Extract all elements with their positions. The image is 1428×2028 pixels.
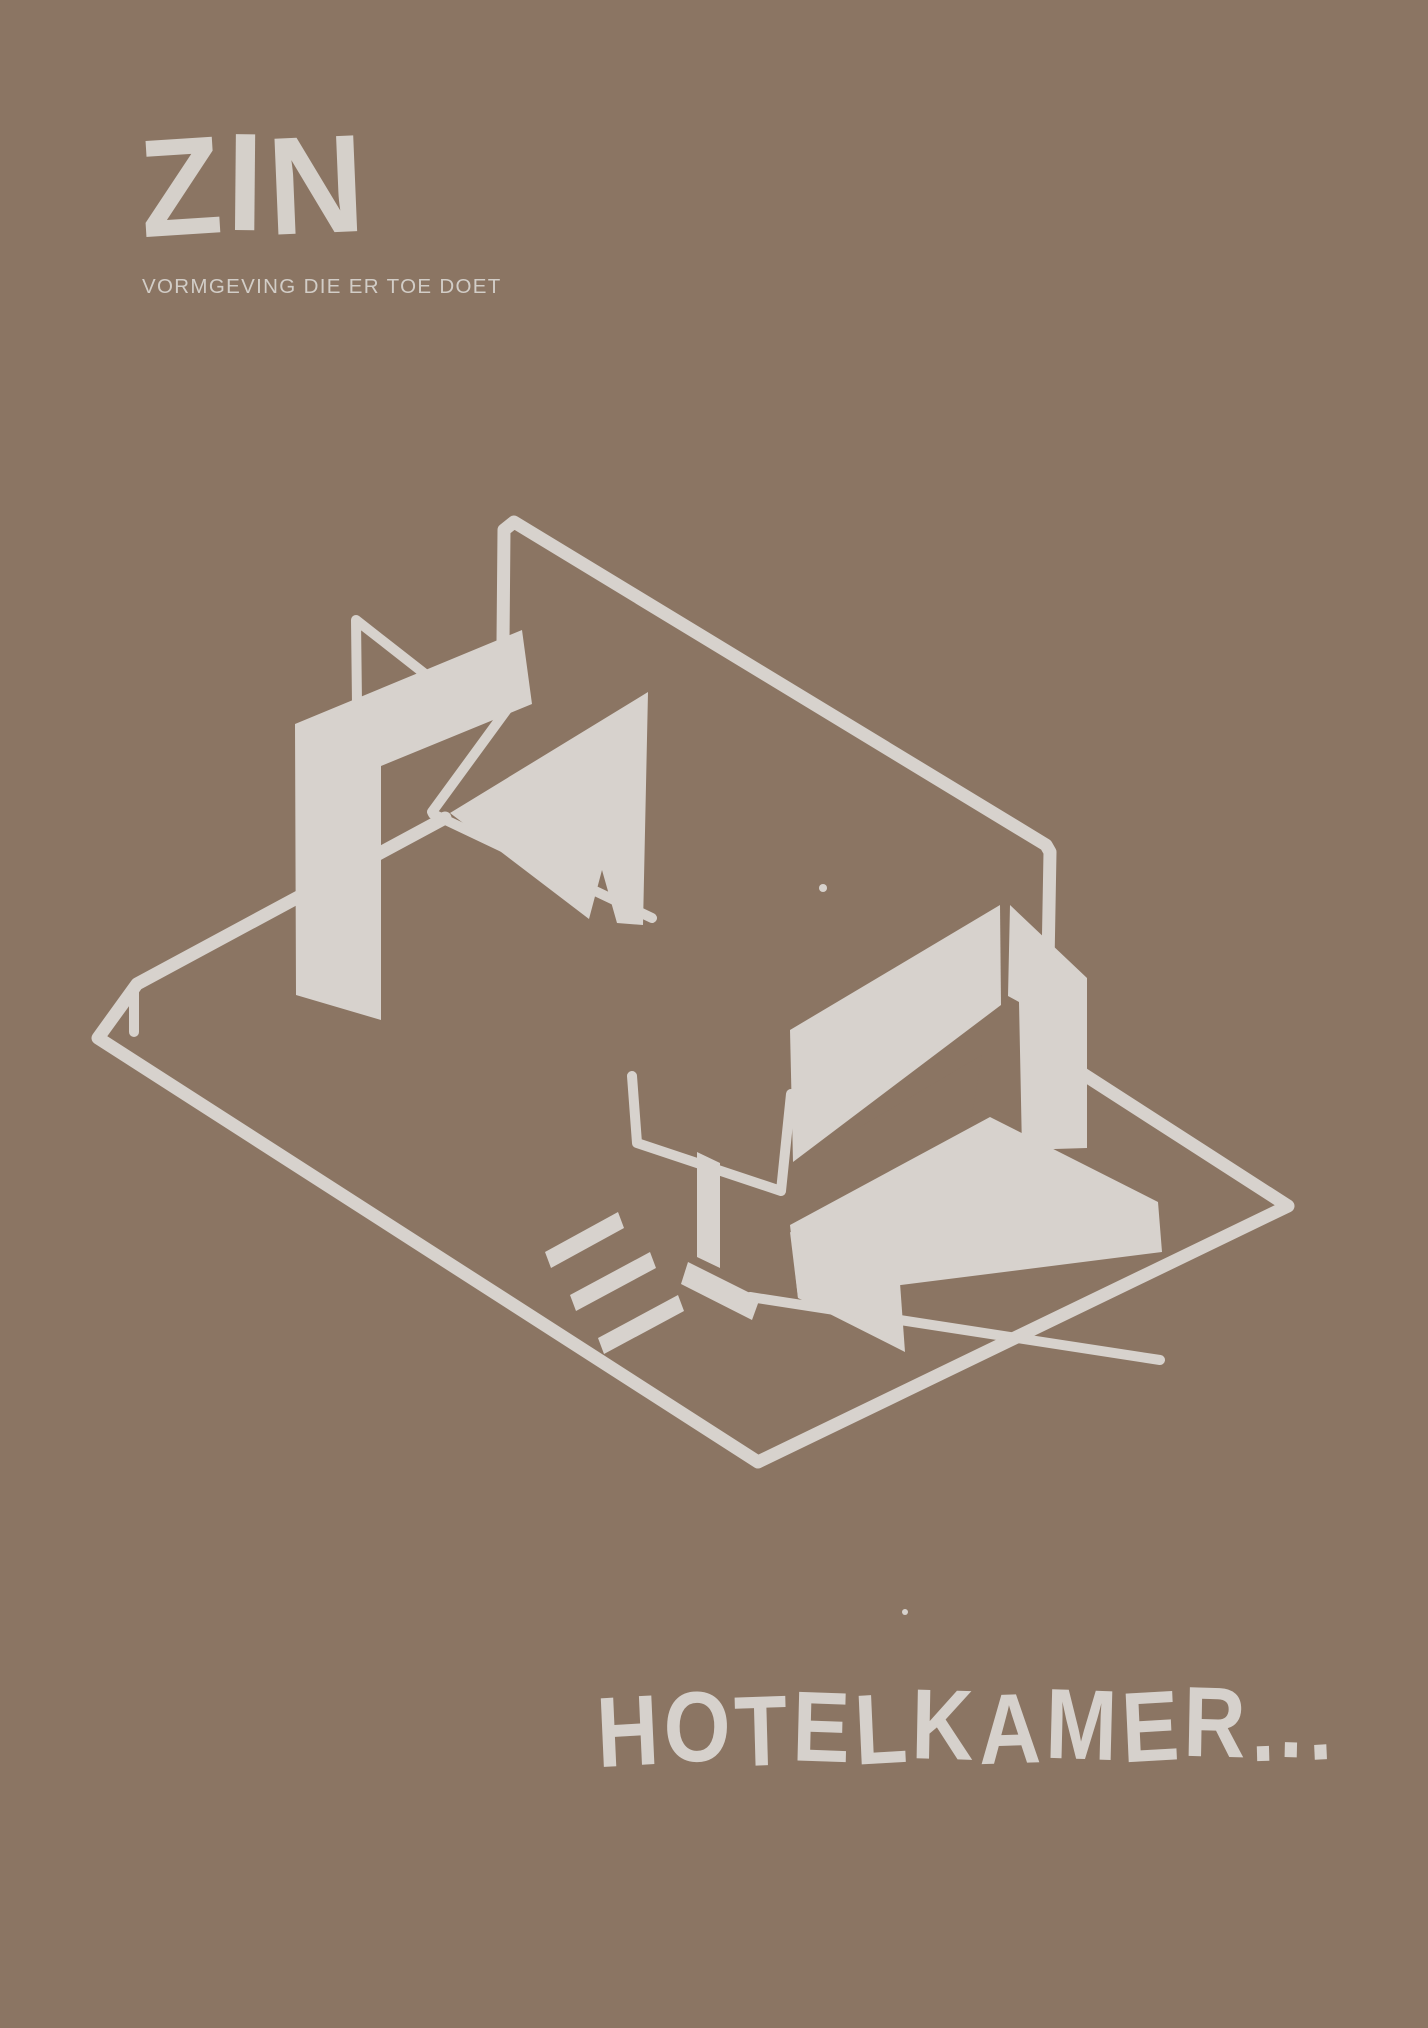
ink-speck-1 — [819, 884, 827, 892]
step-strip-2 — [681, 1262, 760, 1320]
floor-outline — [98, 818, 1288, 1462]
rug-dash-3 — [598, 1295, 684, 1354]
screen-triangle — [450, 692, 648, 925]
rug-dash-2 — [570, 1252, 656, 1311]
platform-base-line — [750, 1297, 1160, 1360]
rug-dash-1 — [545, 1212, 624, 1268]
poster: ZIN VORMGEVING DIE ER TOE DOET — [0, 0, 1428, 2028]
step-strip-1 — [697, 1152, 720, 1268]
ink-speck-2 — [902, 1609, 908, 1615]
hotelkamer-caption: HOTELKAMER... — [596, 1668, 1337, 1789]
right-wall-panel — [1008, 905, 1087, 1150]
